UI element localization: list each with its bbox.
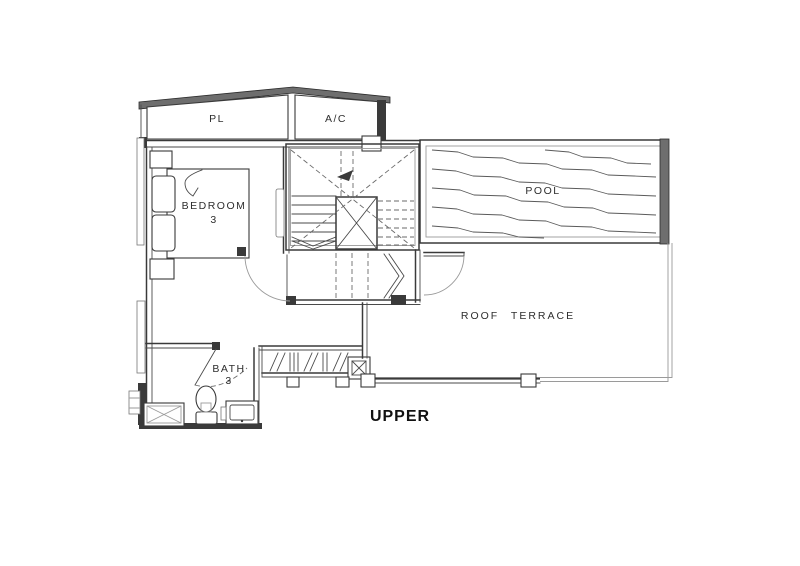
stair-direction-arrow	[337, 170, 353, 181]
pool-label: POOL	[525, 185, 560, 197]
bedroom-label-line1: BEDROOM	[182, 200, 247, 212]
roof-terrace-label: ROOF TERRACE	[461, 310, 575, 322]
stair-south-jamb-right	[391, 295, 406, 305]
roof-canopy: PL A/C	[139, 87, 390, 140]
bathroom: BATH 3	[129, 348, 262, 429]
stair-treads-lower	[336, 253, 368, 298]
pillow-bottom	[152, 215, 175, 251]
shower-icon	[144, 403, 184, 426]
floor-title: UPPER	[370, 408, 430, 425]
wall-tab-right	[336, 377, 349, 387]
ac-label: A/C	[325, 113, 347, 125]
bath-label-line2: 3	[225, 375, 232, 387]
nightstand-bottom	[150, 259, 174, 279]
nightstand-top	[150, 151, 172, 168]
staircase	[286, 144, 464, 305]
stair-break-line	[384, 254, 404, 298]
bath-label-line1: BATH	[212, 363, 245, 375]
louver-window	[259, 346, 370, 387]
west-window-lower	[137, 301, 145, 373]
parapet-post-mid	[521, 374, 536, 387]
treads-above-dashed	[378, 201, 414, 245]
roof-terrace: ROOF TERRACE	[361, 243, 672, 387]
bedroom-door	[237, 247, 290, 301]
bedroom-3: BEDROOM 3	[137, 138, 290, 423]
toilet-tank	[196, 412, 217, 424]
terrace-door-swing-arc	[424, 256, 464, 295]
roof-right-wall	[377, 100, 386, 140]
bed-outline	[167, 169, 249, 258]
louver-slashes	[270, 353, 348, 371]
wall-tab-left	[287, 377, 299, 387]
vanity-drain	[241, 420, 243, 422]
bedroom-label-line2: 3	[210, 214, 217, 226]
east-wall-door-leaf	[276, 189, 284, 237]
void-diagonals	[291, 150, 414, 248]
toilet-bowl	[196, 386, 216, 412]
pool: POOL	[420, 139, 669, 244]
bedroom-door-swing-arc	[245, 256, 290, 301]
stair-treads-upper	[292, 196, 336, 241]
floor-plan-canvas: PL A/C POOL	[0, 0, 800, 566]
sink-icon	[221, 401, 258, 424]
terrace-door	[424, 253, 464, 296]
pillow-top	[152, 176, 175, 212]
bed	[150, 151, 249, 279]
vanity-side-tab	[221, 407, 226, 420]
bath-west-ledge	[129, 391, 140, 414]
stair-winders	[292, 237, 336, 249]
west-window-upper	[137, 138, 144, 245]
stair-void-cross	[336, 197, 377, 249]
toilet-icon	[196, 386, 217, 424]
parapet-post-left	[361, 374, 375, 387]
planter-label: PL	[209, 113, 225, 125]
bedroom-door-jamb	[237, 247, 246, 256]
pool-right-wall	[660, 139, 669, 244]
